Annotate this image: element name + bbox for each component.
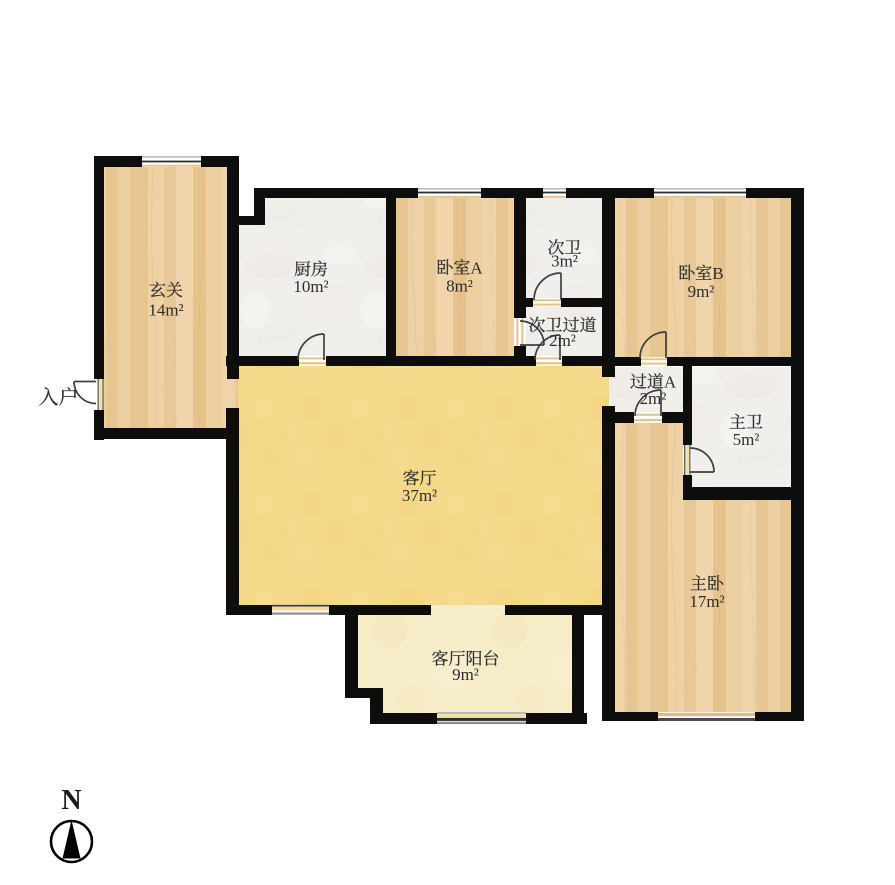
svg-text:5m²: 5m² — [733, 430, 760, 449]
svg-text:N: N — [61, 785, 81, 816]
svg-text:2m²: 2m² — [549, 331, 576, 350]
svg-text:9m²: 9m² — [452, 665, 479, 684]
svg-text:17m²: 17m² — [689, 592, 724, 611]
svg-text:10m²: 10m² — [293, 277, 328, 296]
svg-text:2m²: 2m² — [640, 389, 667, 408]
svg-text:A: A — [470, 259, 483, 278]
svg-text:14m²: 14m² — [148, 301, 183, 320]
svg-text:8m²: 8m² — [446, 277, 473, 296]
svg-text:3m²: 3m² — [551, 252, 578, 271]
svg-text:9m²: 9m² — [688, 282, 715, 301]
svg-text:B: B — [712, 264, 723, 283]
svg-text:37m²: 37m² — [402, 486, 437, 505]
